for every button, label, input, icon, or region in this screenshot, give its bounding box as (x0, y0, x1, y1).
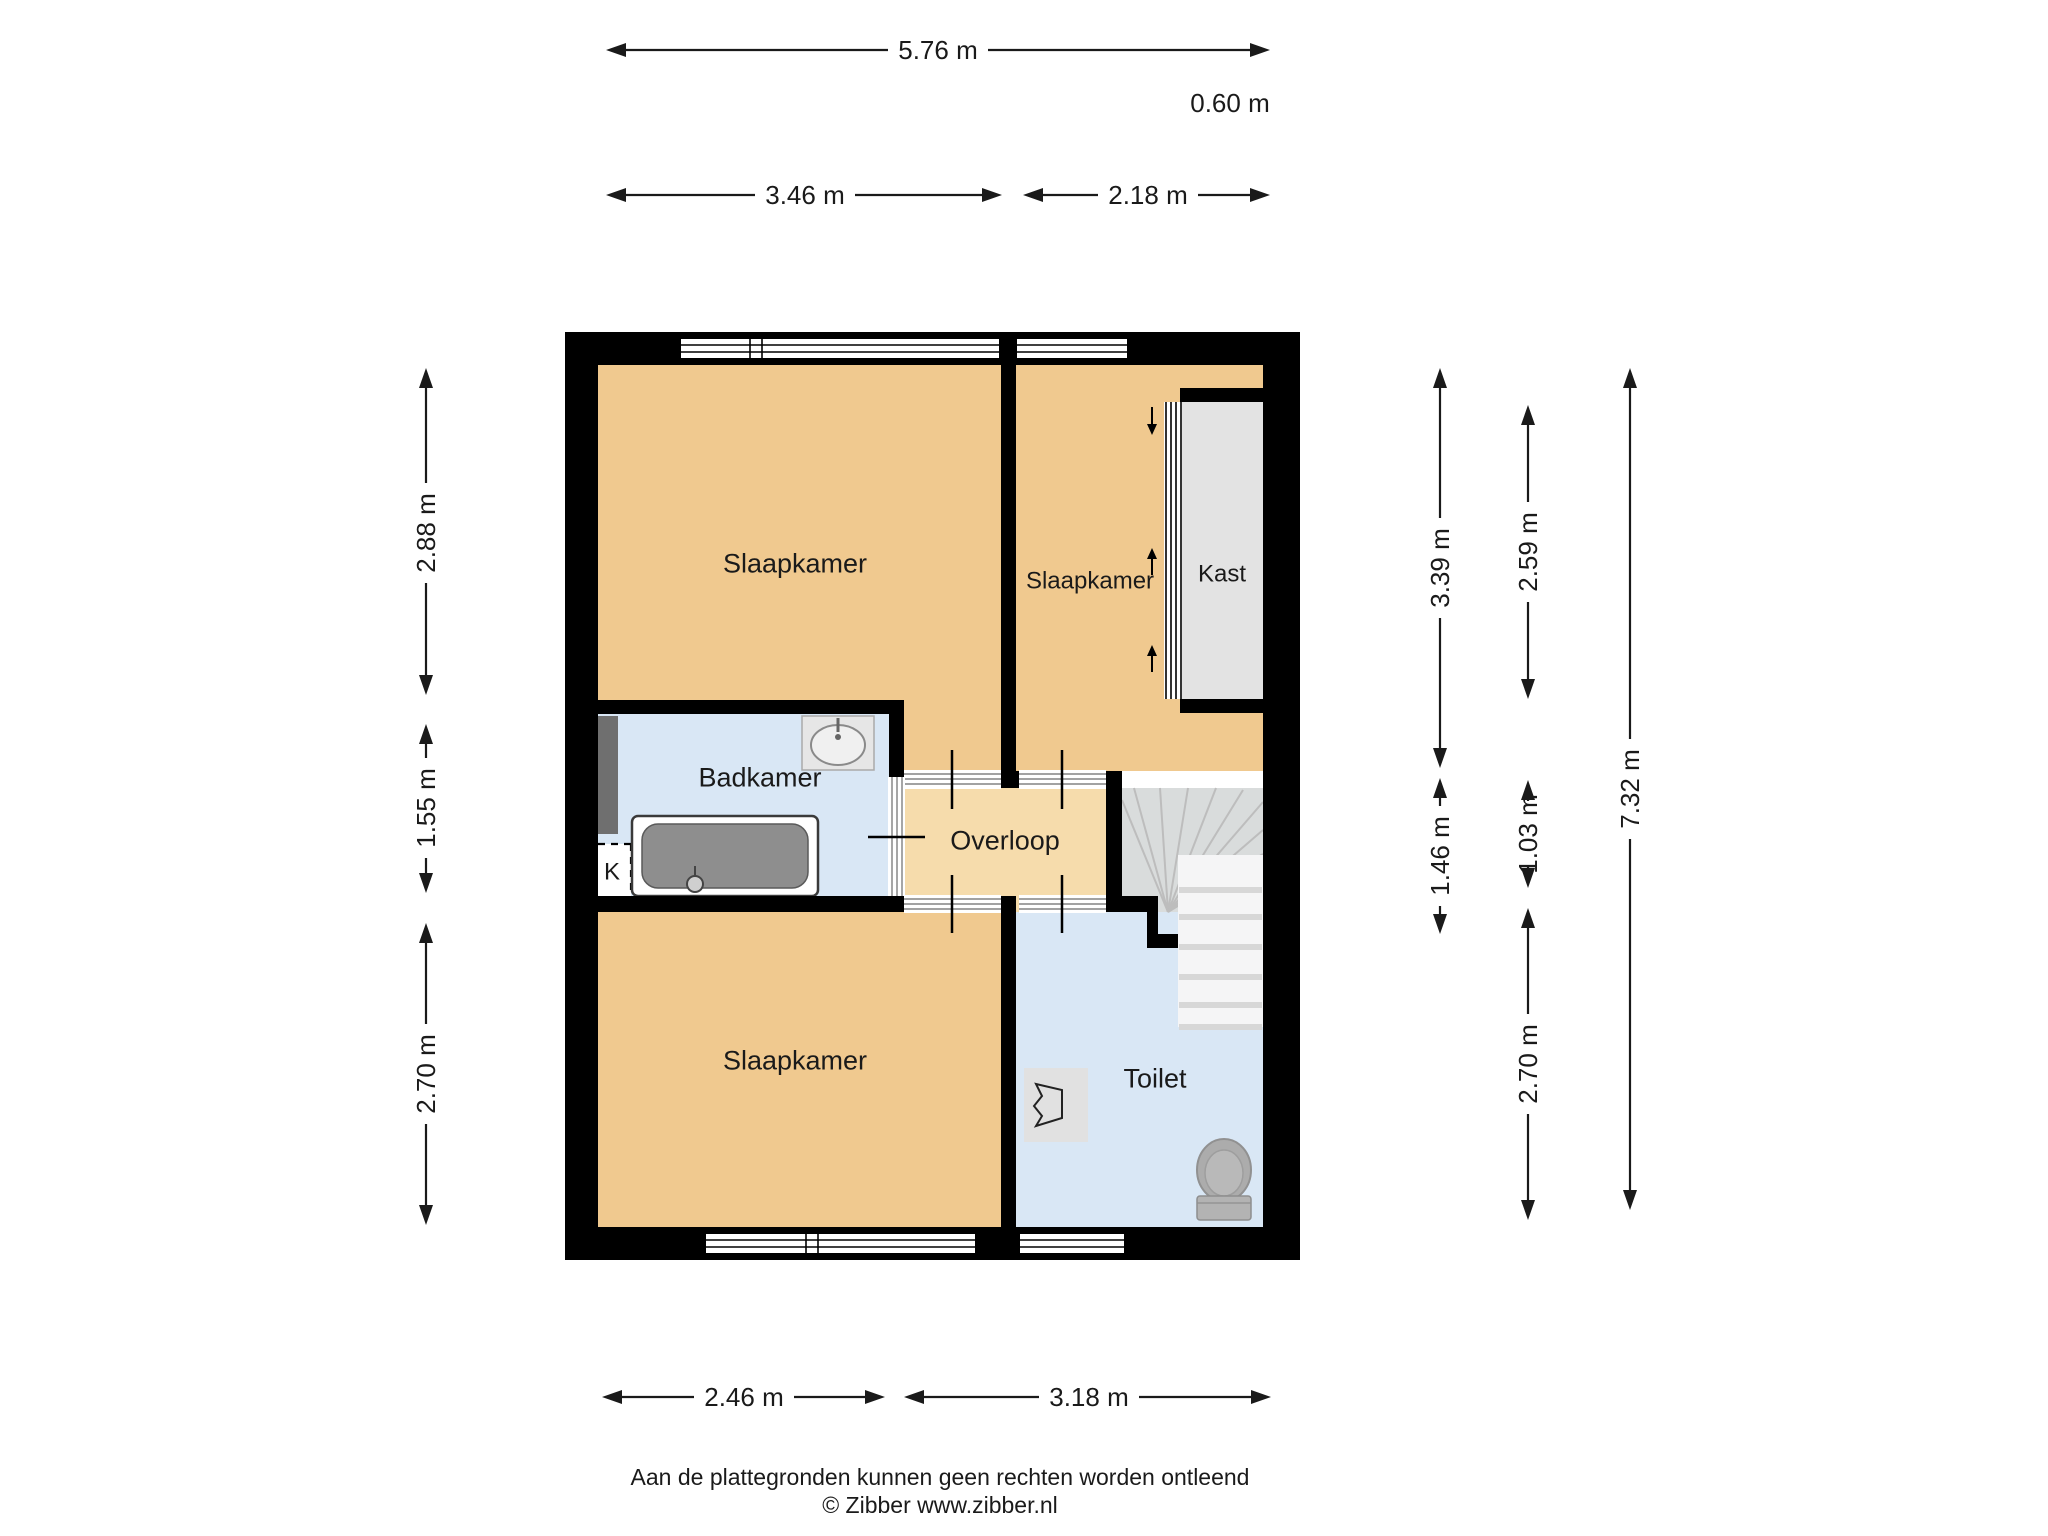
wall-bottom-bedroom-right (1001, 896, 1016, 1227)
dim-right-mid-middle: 1.03 m (1513, 780, 1543, 888)
wall-overloop-top-stub (1001, 771, 1019, 788)
label-slaapkamer-topleft: Slaapkamer (723, 548, 867, 578)
wall-outer-right (1263, 332, 1300, 1260)
room-slaapkamer-topleft-floor-ext (889, 700, 1001, 771)
label-slaapkamer-topright: Slaapkamer (1026, 567, 1154, 594)
dim-left-middle: 1.55 m (411, 724, 441, 893)
dim-right-inner-upper: 3.39 m (1425, 368, 1455, 768)
shaft-duct (598, 716, 618, 834)
wall-kast-bottom (1180, 699, 1263, 713)
dim-bottom-left: 2.46 m (602, 1382, 885, 1412)
window-bottom-bedroom (705, 1233, 976, 1254)
wall-stairwell-left (1106, 788, 1122, 903)
label-k-closet: K (604, 858, 620, 885)
wall-kast-top (1180, 388, 1263, 402)
dim-left-lower-label: 2.70 m (411, 1034, 441, 1114)
wall-outer-left (565, 332, 598, 1260)
dim-right-mid-upper: 2.59 m (1513, 405, 1543, 699)
dim-right-inner-lower-label: 1.46 m (1425, 816, 1455, 896)
wall-overloop-top-stub (1106, 771, 1122, 788)
dim-right-total-label: 7.32 m (1615, 749, 1645, 829)
dim-bottom-left-label: 2.46 m (704, 1382, 784, 1412)
kast-closet (1147, 402, 1263, 699)
dim-top-right: 2.18 m (1023, 180, 1270, 210)
footer: Aan de plattegronden kunnen geen rechten… (631, 1464, 1250, 1518)
wall-badkamer-bottom (565, 896, 904, 912)
dim-right-inner-lower: 1.46 m (1425, 778, 1455, 934)
dim-left-upper-label: 2.88 m (411, 493, 441, 573)
dim-top-left: 3.46 m (606, 180, 1002, 210)
floorplan-drawing: Slaapkamer Slaapkamer Slaapkamer Badkame… (0, 0, 2048, 1536)
label-overloop: Overloop (950, 825, 1060, 855)
window-top-right (1016, 338, 1128, 359)
window-top-left (680, 338, 1000, 359)
dim-top-total-label: 5.76 m (898, 35, 978, 65)
dim-right-mid-upper-label: 2.59 m (1513, 512, 1543, 592)
floorplan-page: Slaapkamer Slaapkamer Slaapkamer Badkame… (0, 0, 2048, 1536)
label-kast: Kast (1198, 560, 1246, 587)
dim-right-mid-lower: 2.70 m (1513, 908, 1543, 1220)
dim-right-inner-upper-label: 3.39 m (1425, 528, 1455, 608)
dim-top-left-label: 3.46 m (765, 180, 845, 210)
label-badkamer: Badkamer (698, 762, 821, 792)
dim-left-upper: 2.88 m (411, 368, 441, 695)
room-slaapkamer-topleft-floor (598, 365, 1001, 700)
dim-right-total: 7.32 m (1615, 368, 1645, 1210)
label-toilet: Toilet (1123, 1063, 1187, 1093)
dim-bottom-right-label: 3.18 m (1049, 1382, 1129, 1412)
dim-top-right-label: 2.18 m (1108, 180, 1188, 210)
kast-floor (1182, 402, 1263, 699)
wc-toilet-icon (1197, 1139, 1251, 1220)
dim-top-total: 5.76 m (606, 35, 1270, 65)
dim-bottom-right: 3.18 m (904, 1382, 1271, 1412)
dim-right-mid-lower-label: 2.70 m (1513, 1024, 1543, 1104)
wall-stairwell-foot (1147, 934, 1178, 948)
label-slaapkamer-bottom: Slaapkamer (723, 1045, 867, 1075)
stairs-straight-flight (1178, 855, 1263, 1027)
bathtub-icon (632, 816, 818, 896)
footer-copyright: © Zibber www.zibber.nl (822, 1492, 1058, 1518)
wall-bedroom-divider (1001, 365, 1016, 771)
window-bottom-toilet (1019, 1233, 1125, 1254)
dim-left-middle-label: 1.55 m (411, 768, 441, 848)
dim-right-mid-middle-label: 1.03 m (1513, 794, 1543, 874)
dim-left-lower: 2.70 m (411, 923, 441, 1225)
dim-top-offset-label: 0.60 m (1190, 88, 1270, 118)
footer-disclaimer: Aan de plattegronden kunnen geen rechten… (631, 1464, 1250, 1490)
wall-badkamer-right-stub (889, 700, 904, 777)
wall-overloop-bottom-stub (1106, 896, 1158, 912)
toilet-basin-icon (1024, 1068, 1088, 1142)
wall-badkamer-top (565, 700, 889, 714)
